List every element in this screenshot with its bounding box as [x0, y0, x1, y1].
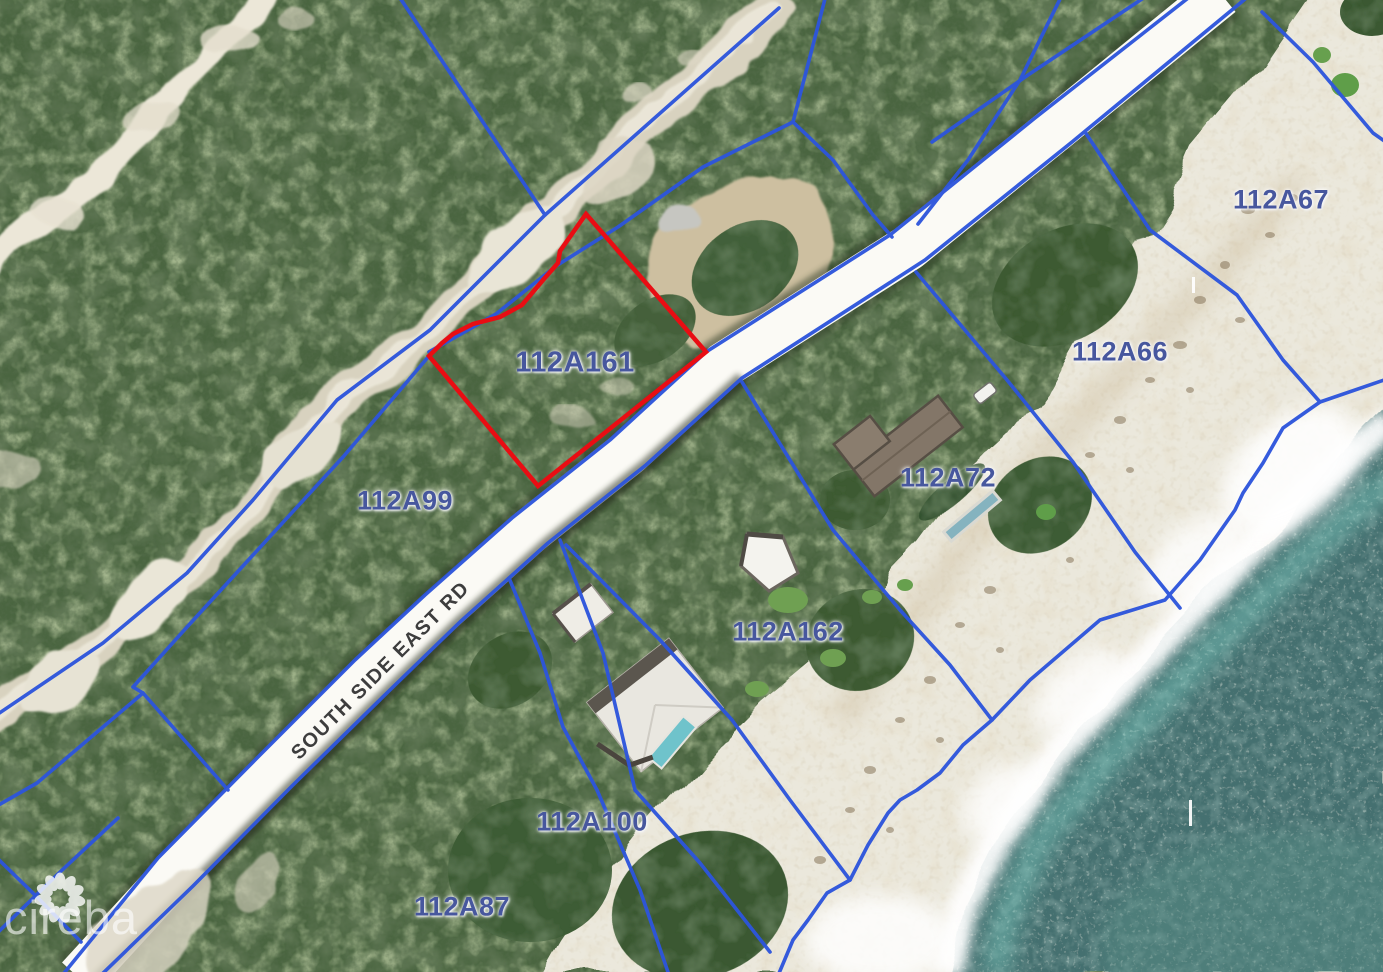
parcel-label-112A161: 112A161: [515, 347, 635, 380]
brand-name: cireba: [4, 890, 138, 945]
brand-watermark: cireba: [0, 858, 220, 972]
parcel-label-112A87: 112A87: [414, 892, 510, 923]
parcel-label-112A66: 112A66: [1072, 337, 1168, 368]
parcel-label-112A99: 112A99: [357, 486, 453, 517]
parcel-label-112A72: 112A72: [900, 463, 996, 494]
satellite-imagery: [0, 0, 1383, 972]
parcel-label-112A100: 112A100: [536, 807, 648, 838]
parcel-label-112A162: 112A162: [732, 617, 844, 648]
parcel-label-112A67: 112A67: [1233, 185, 1329, 216]
map-viewport[interactable]: 112A161 112A99 112A67 112A66 112A72 112A…: [0, 0, 1383, 972]
